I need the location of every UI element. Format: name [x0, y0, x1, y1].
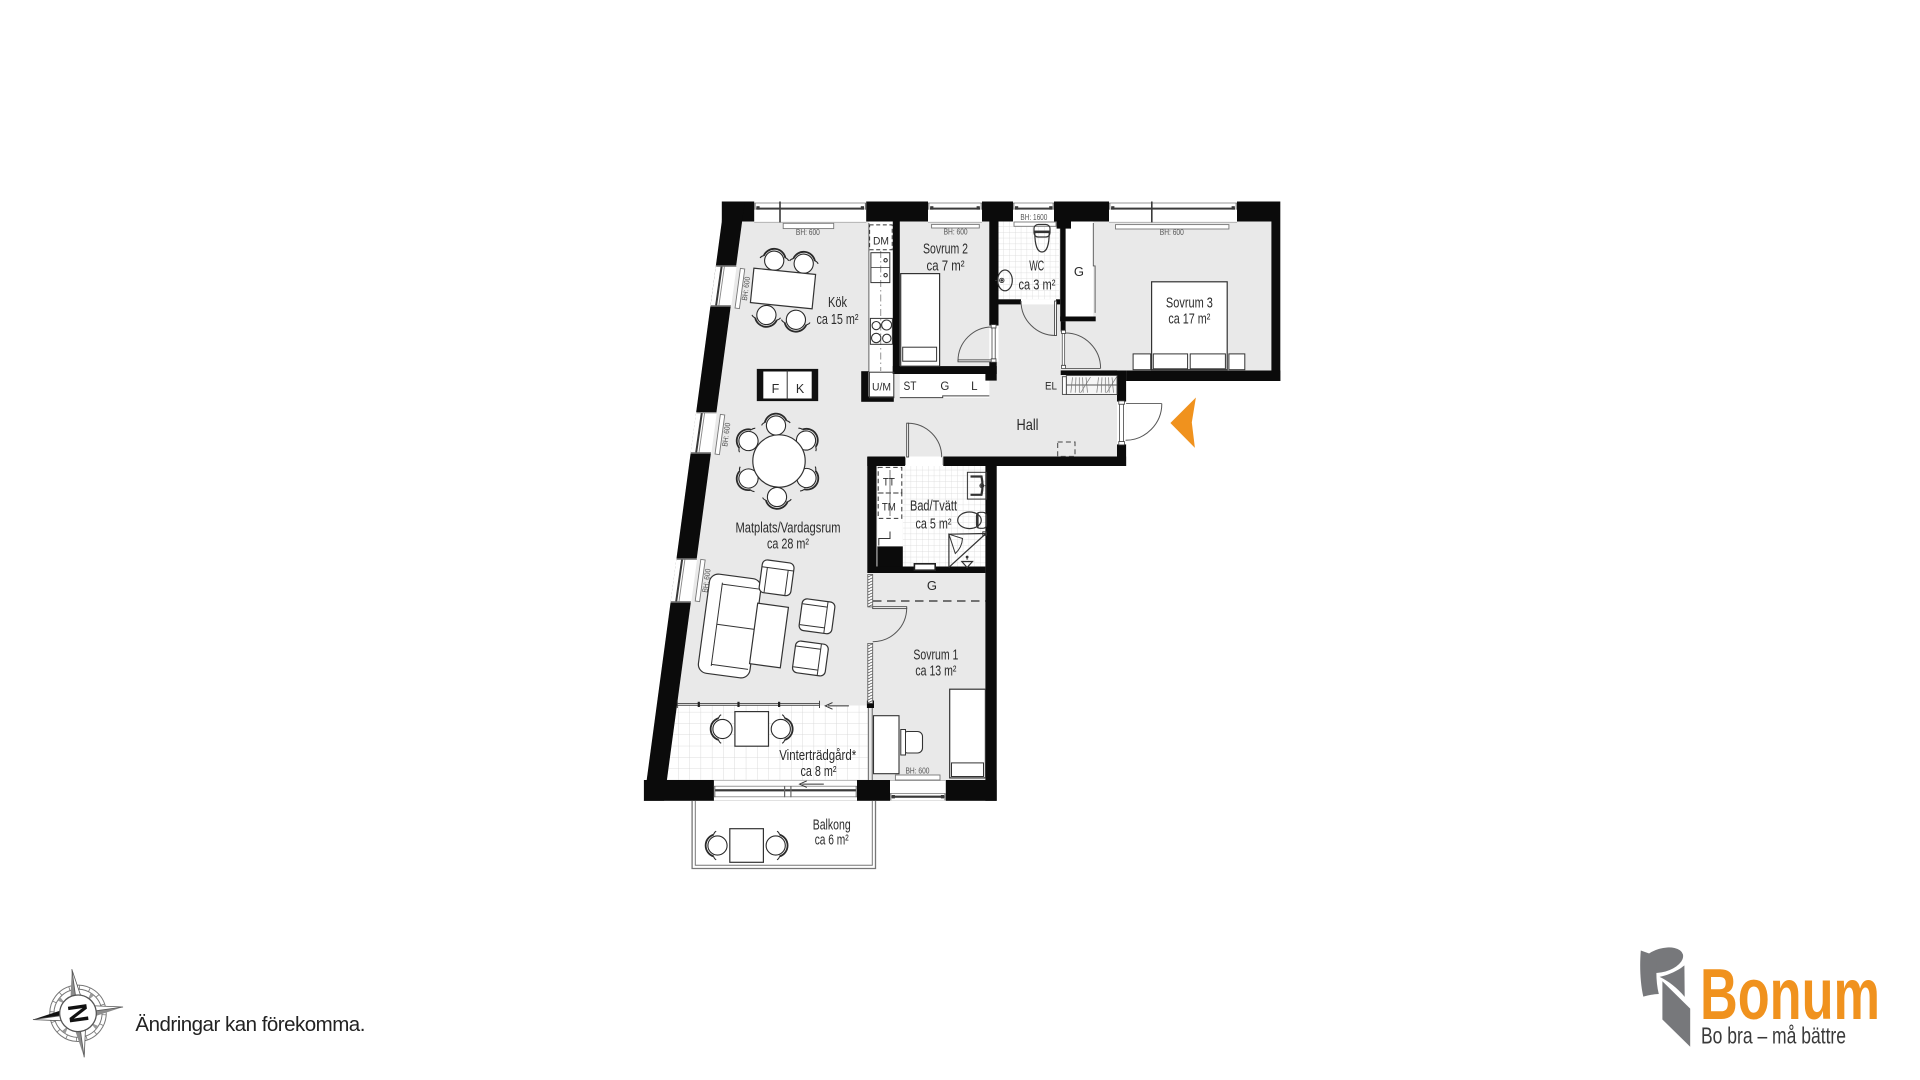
svg-text:ca 8 m²: ca 8 m²	[801, 764, 837, 780]
svg-text:EL: EL	[1045, 381, 1057, 393]
svg-text:K: K	[796, 382, 805, 396]
svg-text:TT: TT	[883, 477, 895, 489]
svg-text:L: L	[971, 381, 978, 393]
svg-text:BH: 600: BH: 600	[796, 228, 821, 237]
svg-text:U/M: U/M	[872, 382, 891, 394]
svg-text:ST: ST	[904, 381, 917, 393]
svg-text:BH: 600: BH: 600	[944, 228, 969, 237]
svg-text:ca 3 m²: ca 3 m²	[1019, 278, 1056, 294]
svg-text:DM: DM	[873, 236, 889, 248]
svg-text:BH: 1600: BH: 1600	[1020, 213, 1048, 222]
svg-text:WC: WC	[1029, 259, 1044, 275]
svg-text:Hall: Hall	[1017, 417, 1039, 434]
svg-text:ca 5 m²: ca 5 m²	[916, 517, 952, 533]
svg-text:BH: 600: BH: 600	[906, 767, 931, 776]
svg-text:ca 13 m²: ca 13 m²	[915, 664, 956, 680]
svg-text:TM: TM	[882, 502, 896, 514]
svg-text:Bo bra – må bättre: Bo bra – må bättre	[1701, 1023, 1846, 1049]
svg-text:ca 15 m²: ca 15 m²	[817, 312, 859, 328]
svg-text:G: G	[940, 381, 949, 393]
svg-text:Sovrum 3: Sovrum 3	[1166, 296, 1213, 312]
svg-text:ca 7 m²: ca 7 m²	[927, 259, 965, 275]
svg-text:Ändringar kan förekomma.: Ändringar kan förekomma.	[135, 1013, 365, 1036]
svg-text:G: G	[1074, 264, 1084, 279]
svg-text:ca 6 m²: ca 6 m²	[815, 833, 849, 849]
svg-text:Matplats/Vardagsrum: Matplats/Vardagsrum	[736, 521, 841, 537]
svg-text:Balkong: Balkong	[813, 818, 851, 834]
svg-text:F: F	[772, 382, 780, 396]
svg-text:Vinterträdgård*: Vinterträdgård*	[779, 748, 856, 764]
svg-text:BH: 600: BH: 600	[1160, 228, 1185, 237]
svg-text:Bad/Tvätt: Bad/Tvätt	[910, 499, 957, 515]
svg-text:N: N	[62, 1001, 94, 1024]
svg-text:ca 17 m²: ca 17 m²	[1168, 312, 1210, 328]
svg-text:Sovrum 1: Sovrum 1	[913, 648, 958, 664]
svg-text:G: G	[927, 578, 937, 593]
svg-text:Sovrum 2: Sovrum 2	[923, 242, 968, 258]
svg-text:ca 28 m²: ca 28 m²	[767, 537, 809, 553]
svg-text:Kök: Kök	[828, 295, 848, 311]
